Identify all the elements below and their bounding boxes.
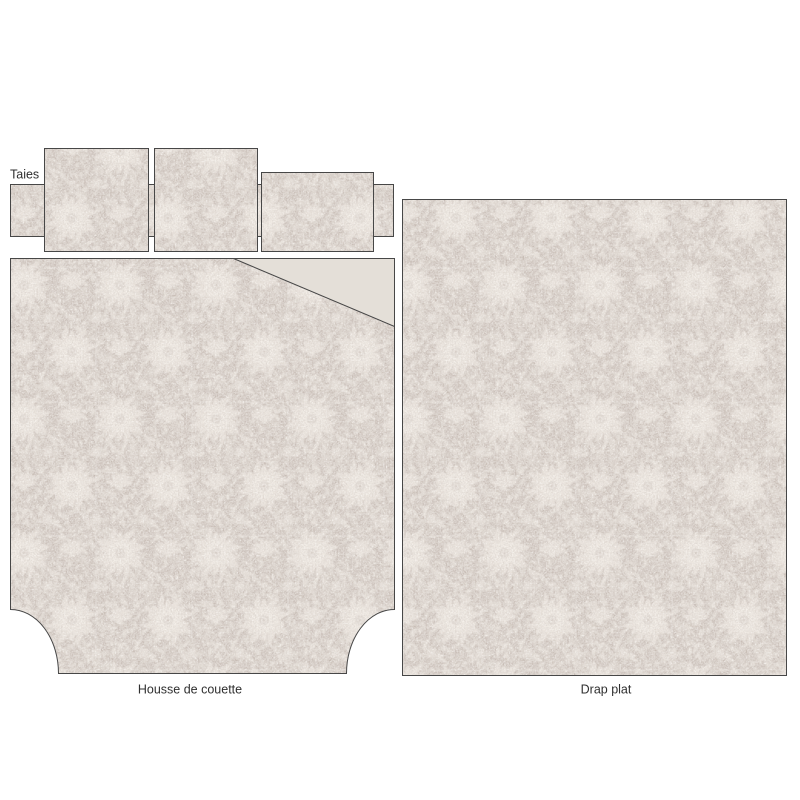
svg-text:Drap plat: Drap plat [581, 683, 632, 697]
svg-text:Taies: Taies [10, 168, 39, 182]
svg-text:Housse de couette: Housse de couette [138, 683, 242, 697]
